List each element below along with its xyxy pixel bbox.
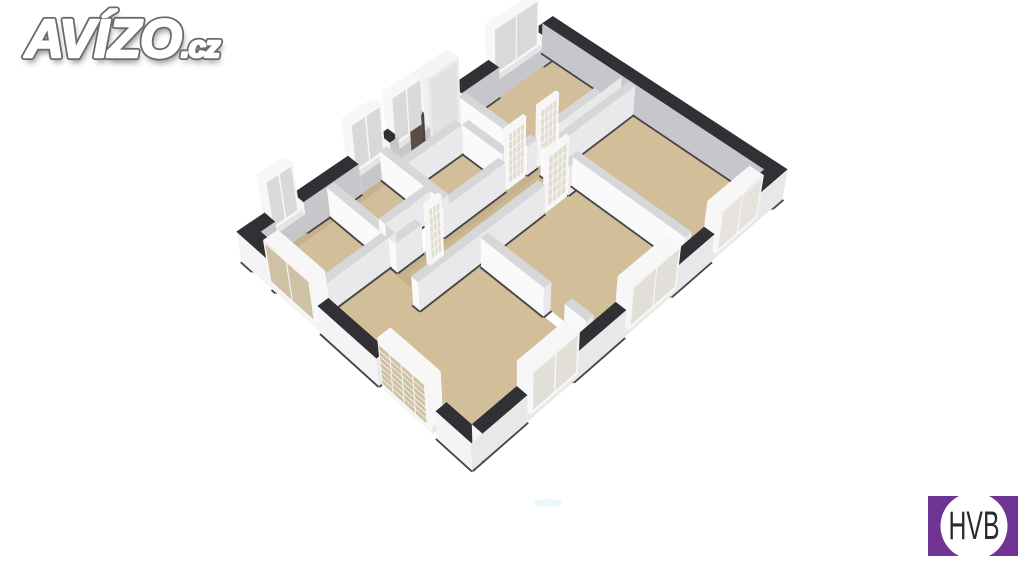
svg-text:HVB: HVB [949,504,1000,548]
svg-text:AVÍZO.cz: AVÍZO.cz [23,9,221,69]
